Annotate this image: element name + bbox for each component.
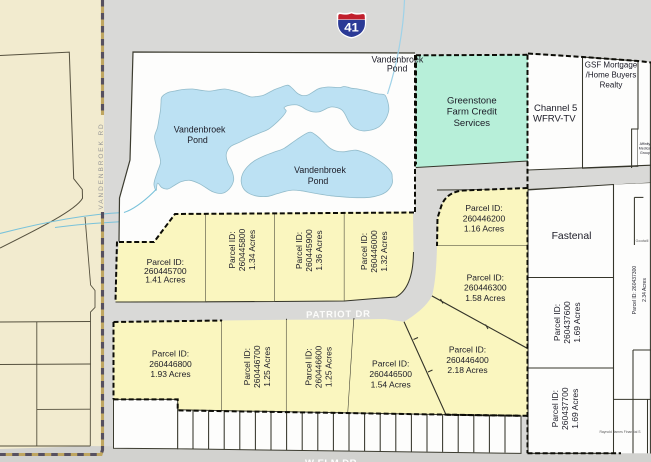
svg-text:Pond: Pond <box>187 135 208 145</box>
svg-text:Realty: Realty <box>600 81 623 90</box>
svg-text:260446200: 260446200 <box>463 213 506 223</box>
svg-text:Parcel ID:: Parcel ID: <box>372 359 409 369</box>
svg-text:Pond: Pond <box>308 176 329 186</box>
svg-text:260446000: 260446000 <box>369 230 379 273</box>
svg-text:Goodwill: Goodwill <box>636 239 649 243</box>
svg-text:260446700: 260446700 <box>252 345 262 388</box>
svg-text:1.69 Acres: 1.69 Acres <box>572 302 582 342</box>
svg-text:Parcel ID:: Parcel ID: <box>467 272 504 282</box>
svg-text:Parcel ID:: Parcel ID: <box>294 232 304 269</box>
svg-text:1.41 Acres: 1.41 Acres <box>145 275 185 285</box>
svg-text:1.93 Acres: 1.93 Acres <box>150 369 190 379</box>
svg-text:260446500: 260446500 <box>369 369 412 379</box>
svg-text:260446800: 260446800 <box>149 359 192 369</box>
svg-text:Raynold James Financial S: Raynold James Financial S <box>599 430 641 434</box>
svg-text:Parcel ID:: Parcel ID: <box>152 348 189 358</box>
svg-text:2.18 Acres: 2.18 Acres <box>447 365 487 375</box>
svg-text:Affinity: Affinity <box>640 142 651 146</box>
svg-text:Parcel ID:: Parcel ID: <box>359 233 369 270</box>
svg-text:260446600: 260446600 <box>314 345 324 388</box>
svg-text:Group: Group <box>640 151 650 155</box>
svg-text:260445800: 260445800 <box>237 228 247 271</box>
svg-text:Vandenbroek: Vandenbroek <box>174 125 226 135</box>
svg-text:Pond: Pond <box>387 64 408 74</box>
svg-text:260445900: 260445900 <box>304 229 314 272</box>
svg-text:Parcel ID:: Parcel ID: <box>552 304 562 341</box>
svg-text:Parcel ID: 260437300: Parcel ID: 260437300 <box>632 266 638 315</box>
svg-text:260446300: 260446300 <box>464 283 507 293</box>
svg-text:Parcel ID:: Parcel ID: <box>242 348 252 385</box>
svg-text:1.32 Acres: 1.32 Acres <box>379 231 389 271</box>
svg-text:260437600: 260437600 <box>562 301 572 344</box>
svg-text:/Home Buyers: /Home Buyers <box>586 71 637 80</box>
svg-text:GSF Mortgage: GSF Mortgage <box>585 61 638 70</box>
svg-text:WFRV-TV: WFRV-TV <box>533 114 576 125</box>
svg-text:1.58 Acres: 1.58 Acres <box>465 293 505 303</box>
svg-text:1.69 Acres: 1.69 Acres <box>570 389 580 429</box>
svg-text:W ELM DR: W ELM DR <box>305 458 357 462</box>
svg-text:Greenstone: Greenstone <box>447 96 497 107</box>
svg-text:Services: Services <box>454 118 491 129</box>
svg-text:1.25 Acres: 1.25 Acres <box>324 347 334 387</box>
svg-text:1.16 Acres: 1.16 Acres <box>464 224 504 234</box>
svg-text:VANDENBROEK RD: VANDENBROEK RD <box>98 122 105 209</box>
svg-text:Parcel ID:: Parcel ID: <box>304 348 314 385</box>
svg-text:1.25 Acres: 1.25 Acres <box>262 347 272 387</box>
svg-text:Parcel ID:: Parcel ID: <box>465 203 502 213</box>
svg-text:Vandenbroek: Vandenbroek <box>294 165 346 175</box>
svg-text:Parcel ID:: Parcel ID: <box>227 231 237 268</box>
svg-text:Parcel ID:: Parcel ID: <box>550 390 560 427</box>
svg-text:Medical: Medical <box>639 147 651 151</box>
svg-text:1.34 Acres: 1.34 Acres <box>247 230 257 270</box>
svg-text:2.34 Acres: 2.34 Acres <box>642 278 648 302</box>
svg-text:260437700: 260437700 <box>560 387 570 430</box>
svg-text:41: 41 <box>344 21 359 34</box>
svg-text:Farm Credit: Farm Credit <box>447 107 498 118</box>
svg-text:1.54 Acres: 1.54 Acres <box>371 380 411 390</box>
svg-text:1.36 Acres: 1.36 Acres <box>314 230 324 270</box>
svg-text:Parcel ID:: Parcel ID: <box>449 345 486 355</box>
svg-text:260446400: 260446400 <box>446 355 489 365</box>
svg-text:Fastenal: Fastenal <box>552 231 592 242</box>
svg-text:Channel 5: Channel 5 <box>534 103 577 114</box>
svg-text:PATRIOT DR: PATRIOT DR <box>306 309 371 321</box>
